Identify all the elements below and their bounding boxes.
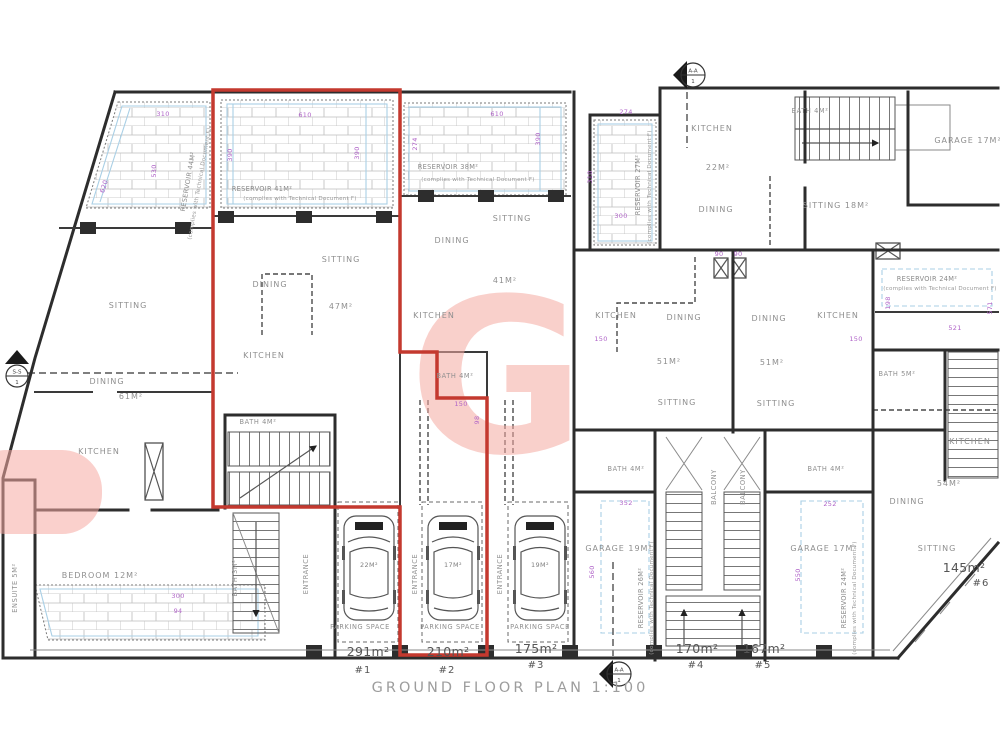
room-label: DINING [252,280,287,289]
section-marker-number: 1 [15,380,19,386]
floor-plan-canvas: G S-S 1 A-A 1 A-A 1 GROUND FLOOR PLAN 1:… [0,0,1000,750]
unit-number-label: #1 [355,665,372,676]
dimension-label: 390 [353,146,361,159]
room-label: GARAGE 19M² [585,544,652,553]
room-label: KITCHEN [413,311,455,320]
dimension-label: 610 [298,111,311,119]
dimension-label: 352 [619,499,632,507]
floor-plan-drawing: G S-S 1 A-A 1 A-A 1 GROUND FLOOR PLAN 1:… [0,0,1000,750]
dimension-label: 560 [588,565,596,578]
section-marker-label: A-A [614,668,624,674]
room-label: GARAGE 17M² [790,544,857,553]
car-area-label: 22M² [360,561,378,569]
unit-area-label: 291m² [347,644,390,659]
section-marker-top: A-A 1 [673,61,705,89]
unit-number-label: #2 [439,665,456,676]
room-label: SITTING [757,399,796,408]
entrance-label: ENTRANCE [496,554,504,594]
reservoir-note: (complies with Technical Document F) [649,541,655,654]
parking-space-label: PARKING SPACE [330,623,390,631]
room-label: DINING [751,314,786,323]
stair-central-shared [666,596,760,646]
room-label: 51M² [657,357,681,366]
dimension-label: 90 [734,250,743,258]
dimension-label: 150 [594,335,607,343]
room-label: SITTING 18M² [803,201,869,210]
unit-area-label: 175m² [515,641,558,656]
unit-area-label: 170m² [676,641,719,656]
dimension-label: 98 [473,416,481,425]
unit-number-label: #6 [973,578,990,589]
dimension-label: 300 [171,592,184,600]
room-label: 22M² [706,163,730,172]
dimension-label: 571 [986,301,994,314]
room-label: 47M² [329,302,353,311]
room-label: BATH 4M² [240,418,277,426]
dimension-label: 390 [226,148,234,161]
room-label: 51M² [760,358,784,367]
stair-right [948,352,998,478]
dimension-label: 274 [411,137,419,150]
stair-unit1-lower-flight [228,472,330,505]
room-label: KITCHEN [949,437,991,446]
dimension-label: 300 [614,212,627,220]
dimension-label: 390 [534,132,542,145]
watermark-fragment [0,450,102,534]
section-marker-label: A-A [688,69,698,75]
room-label: KITCHEN [595,311,637,320]
section-marker-label: S-S [13,370,22,376]
room-label: 61M² [119,392,143,401]
plan-title: GROUND FLOOR PLAN 1:100 [372,680,649,696]
dimension-label: 150 [849,335,862,343]
room-label: 54M² [937,479,961,488]
dimension-label: 274 [619,108,632,116]
room-label: DINING [698,205,733,214]
unit-area-label: 145m² [943,560,986,575]
room-label: BATH 4M² [437,372,474,380]
dimension-label: 94 [174,607,183,615]
balcony-label: BALCONY [739,469,747,505]
parking-space-label: PARKING SPACE [510,623,570,631]
stair-central-right [724,492,760,590]
reservoir-note: (complies with Technical Document F) [883,286,996,292]
stair-unit1-upper [228,432,330,466]
dimension-label: 310 [156,110,169,118]
car-area-label: 17M² [444,561,462,569]
room-label: SITTING [658,398,697,407]
reservoir-label: RESERVOIR 27M² [634,155,642,216]
room-label: DINING [666,313,701,322]
car-area-label: 19M² [531,561,549,569]
dimension-label: 198 [884,296,892,309]
room-label: SITTING [918,544,957,553]
room-label: SITTING [493,214,532,223]
reservoir-label: RESERVOIR 24M² [840,568,848,629]
room-label: BATH 4M² [808,465,845,473]
reservoir-note: (complies with Technical Document F) [647,130,653,243]
room-label: KITCHEN [243,351,285,360]
room-label: BATH 5M² [879,370,916,378]
room-label: 41M² [493,276,517,285]
reservoir-note: (complies with Technical Document F) [243,196,356,202]
parking-space-label: PARKING SPACE [420,623,480,631]
dimension-label: 521 [948,324,961,332]
room-label: DINING [89,377,124,386]
room-label: ENSUITE 5M² [11,563,19,612]
unit-number-label: #3 [528,660,545,671]
section-marker-left: S-S 1 [5,350,29,387]
entrance-label: ENTRANCE [302,554,310,594]
room-label: BATH 3M² [231,560,239,597]
reservoir-note: (complies with Technical Document F) [421,177,534,183]
reservoir-label: RESERVOIR 24M² [897,275,958,283]
unit-area-label: 167m² [743,641,786,656]
dimension-label: 150 [454,400,467,408]
watermark-letter: G [409,252,585,503]
unit-area-label: 210m² [427,644,470,659]
room-label: GARAGE 17M² [934,136,1000,145]
dimension-label: 610 [490,110,503,118]
lift-shaft [714,258,728,278]
room-label: BATH 4M² [608,465,645,473]
dimension-label: 310 [586,170,594,183]
unit-number-label: #4 [688,660,705,671]
reservoir-note: (complies with Technical Document F) [852,541,858,654]
room-label: BATH 4M² [792,107,829,115]
stair-central-left [666,492,702,590]
room-label: KITCHEN [78,447,120,456]
dimension-label: 90 [715,250,724,258]
room-label: DINING [889,497,924,506]
reservoir-label: RESERVOIR 26M² [637,568,645,629]
entrance-label: ENTRANCE [411,554,419,594]
unit-number-label: #5 [755,660,772,671]
reservoir-label: RESERVOIR 38M² [418,163,479,171]
room-label: BEDROOM 12M² [62,571,139,580]
room-label: SITTING [109,301,148,310]
dimension-label: 252 [823,500,836,508]
lift-shaft [145,443,163,500]
balcony-label: BALCONY [710,469,718,505]
dimension-label: 550 [794,568,802,581]
room-label: KITCHEN [691,124,733,133]
room-label: SITTING [322,255,361,264]
room-label: DINING [434,236,469,245]
section-marker-number: 1 [691,79,695,85]
reservoir-label: RESERVOIR 41M² [232,185,293,193]
room-label: KITCHEN [817,311,859,320]
dimension-label: 530 [150,164,158,177]
